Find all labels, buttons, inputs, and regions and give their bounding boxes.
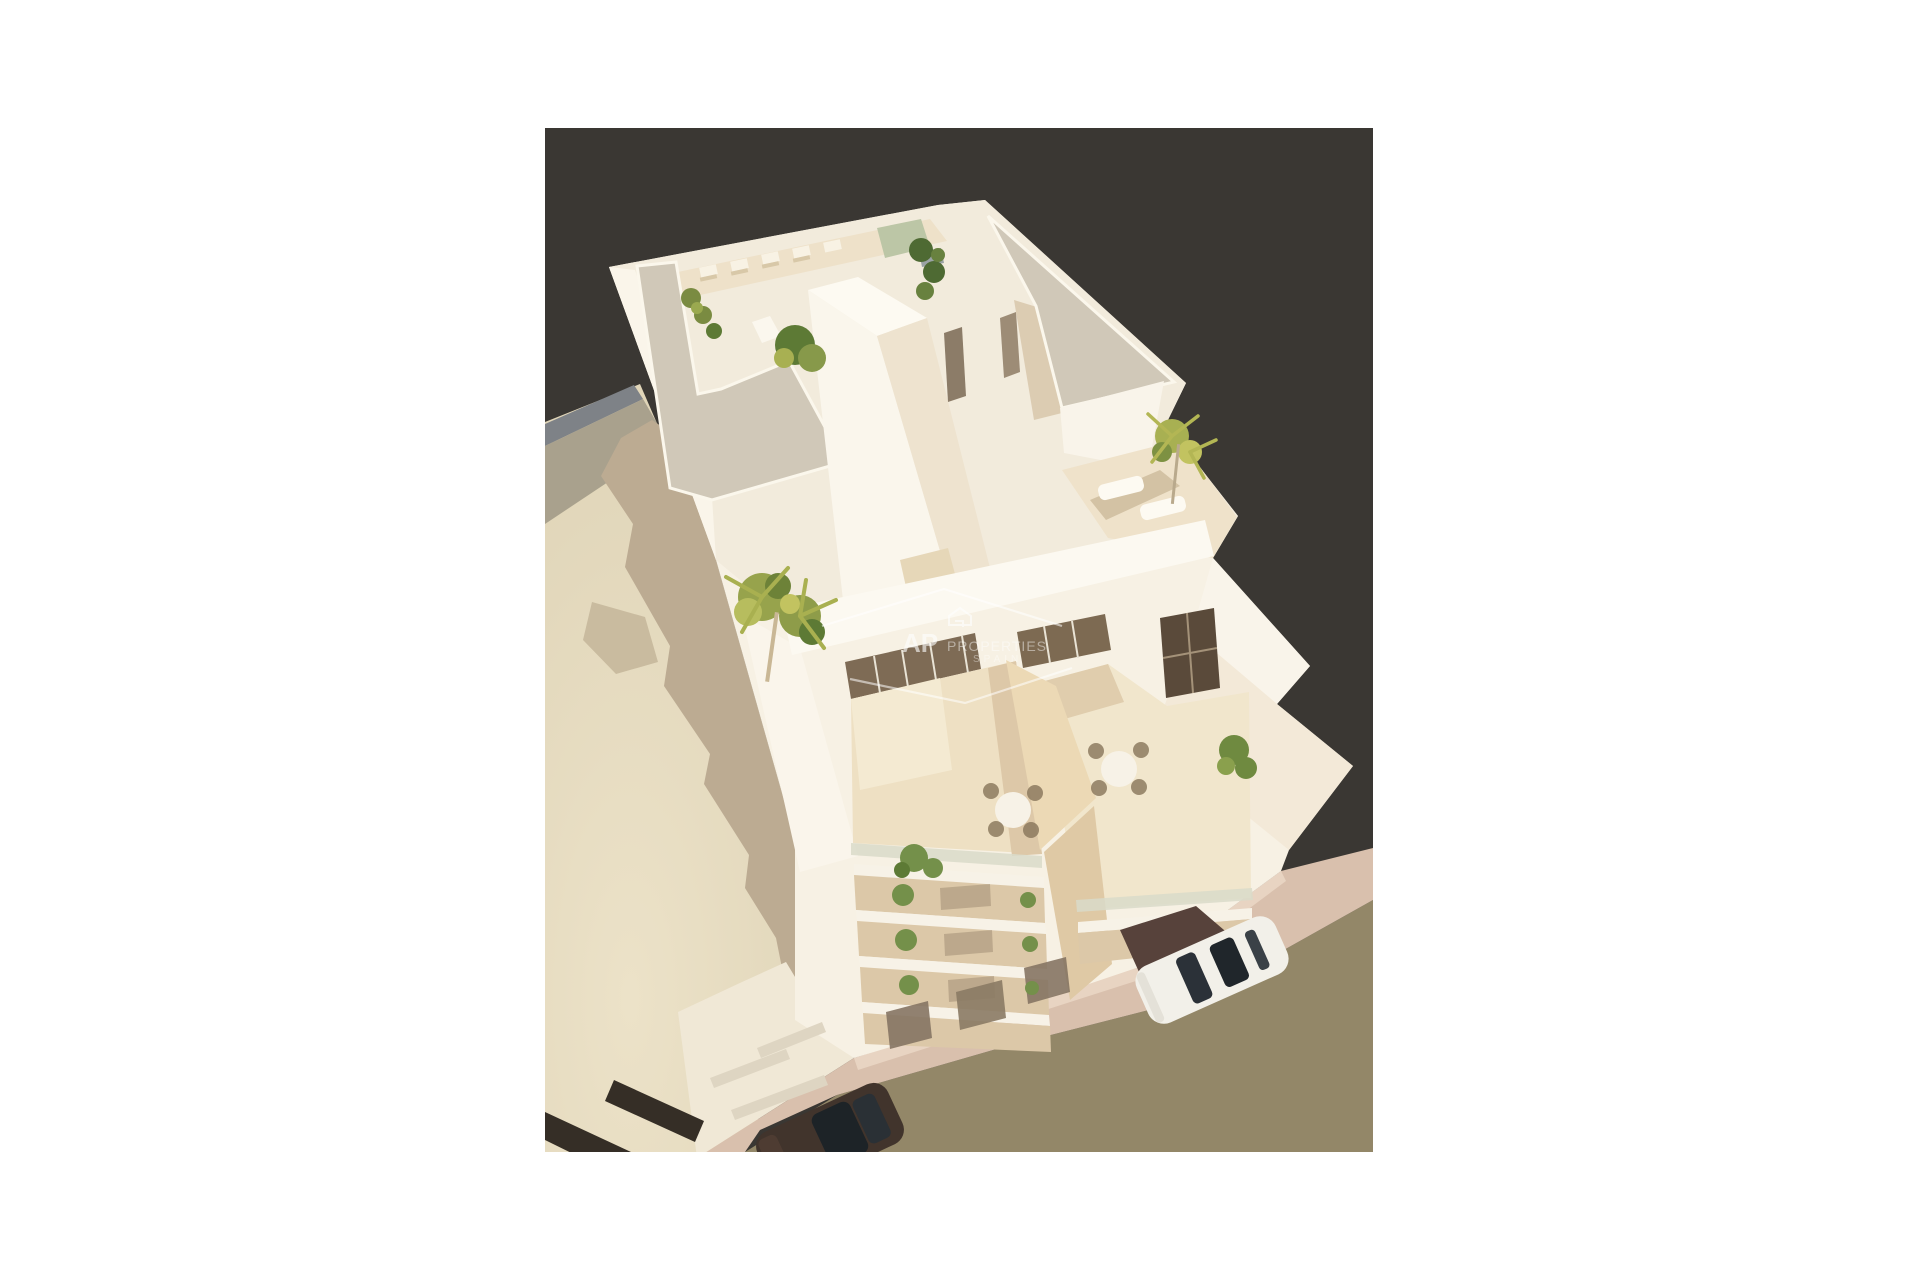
svg-text:PROPERTIES: PROPERTIES: [947, 638, 1047, 654]
svg-text:AP: AP: [902, 628, 938, 658]
svg-text:SPAIN: SPAIN: [973, 654, 1022, 665]
